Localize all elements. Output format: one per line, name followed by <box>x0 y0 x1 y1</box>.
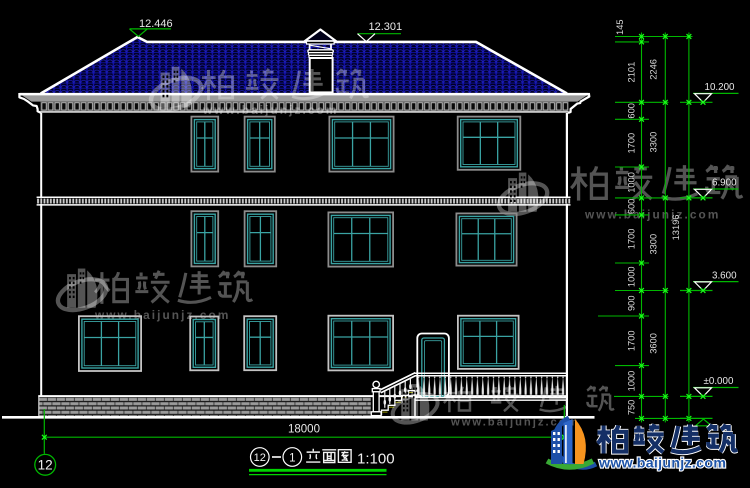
svg-text:12.301: 12.301 <box>369 21 403 33</box>
svg-text:www.baijunjz.com: www.baijunjz.com <box>598 456 726 472</box>
svg-text:1700: 1700 <box>627 229 637 250</box>
svg-text:3300: 3300 <box>649 132 659 153</box>
svg-text:www.baijunjz.com: www.baijunjz.com <box>202 103 338 117</box>
svg-text:145: 145 <box>615 19 625 35</box>
svg-text:750: 750 <box>627 400 637 416</box>
svg-text:3600: 3600 <box>649 333 659 354</box>
svg-text:±0.000: ±0.000 <box>704 376 734 387</box>
svg-text:12: 12 <box>254 452 266 464</box>
svg-text:10.200: 10.200 <box>705 82 736 93</box>
svg-text:12: 12 <box>38 458 53 473</box>
svg-text:12.446: 12.446 <box>139 18 173 30</box>
svg-text:600: 600 <box>627 103 637 119</box>
svg-text:900: 900 <box>627 295 637 311</box>
svg-text:2101: 2101 <box>627 62 637 83</box>
svg-text:1000: 1000 <box>627 172 637 193</box>
svg-text:13196: 13196 <box>671 215 681 241</box>
svg-text:1: 1 <box>289 452 295 464</box>
svg-text:www.baijunjz.com: www.baijunjz.com <box>584 208 720 222</box>
svg-text:18000: 18000 <box>288 424 320 436</box>
svg-text:2246: 2246 <box>649 59 659 80</box>
svg-text:1700: 1700 <box>627 133 637 154</box>
svg-text:3300: 3300 <box>649 234 659 255</box>
svg-text:1000: 1000 <box>627 266 637 287</box>
svg-text:6.900: 6.900 <box>712 178 737 189</box>
svg-text:1700: 1700 <box>627 330 637 351</box>
svg-text:1:100: 1:100 <box>357 451 395 468</box>
svg-text:3.600: 3.600 <box>712 270 737 281</box>
svg-text:600: 600 <box>627 199 637 215</box>
svg-text:1000: 1000 <box>627 371 637 392</box>
